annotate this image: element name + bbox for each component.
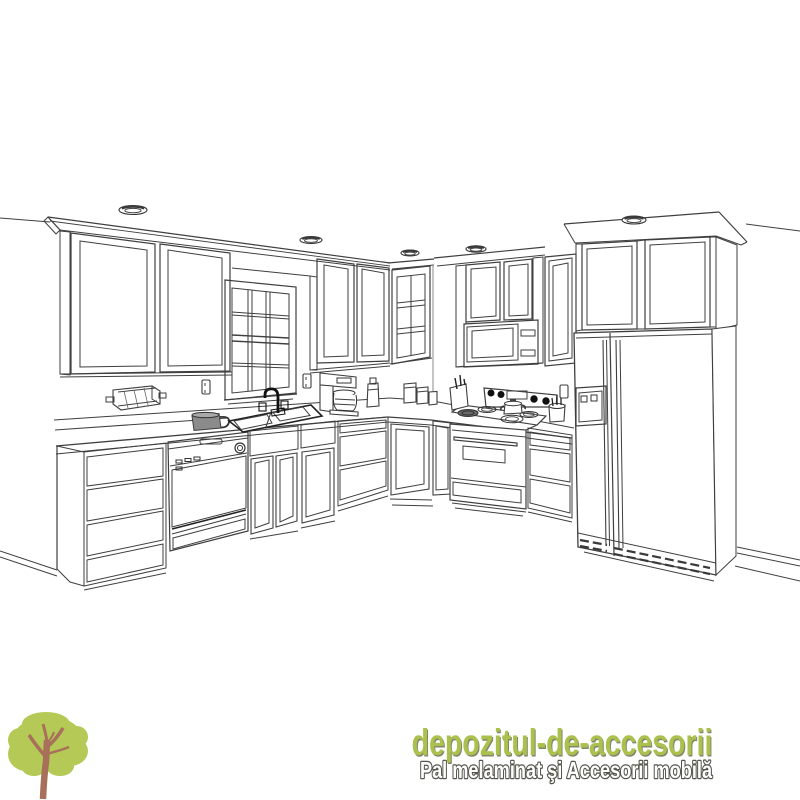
svg-text:Pal melaminat şi Accesorii mob: Pal melaminat şi Accesorii mobilă xyxy=(420,758,712,784)
svg-text:depozitul-de-accesorii: depozitul-de-accesorii xyxy=(412,721,713,762)
